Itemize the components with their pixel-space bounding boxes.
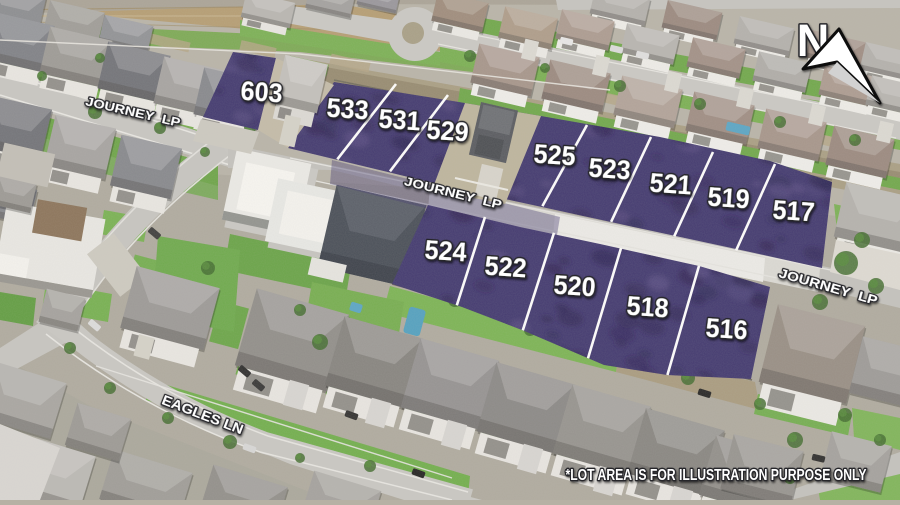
svg-text:521: 521 <box>649 168 693 201</box>
svg-text:520: 520 <box>553 270 597 303</box>
svg-text:518: 518 <box>626 291 670 324</box>
svg-text:522: 522 <box>484 251 528 284</box>
svg-text:529: 529 <box>426 115 470 148</box>
svg-text:523: 523 <box>588 153 632 186</box>
svg-text:524: 524 <box>424 235 468 268</box>
svg-text:*LOT AREA IS FOR ILLUSTRATION: *LOT AREA IS FOR ILLUSTRATION PURPOSE ON… <box>566 467 867 484</box>
svg-text:525: 525 <box>533 139 577 172</box>
svg-text:603: 603 <box>240 76 284 109</box>
svg-text:519: 519 <box>707 182 751 215</box>
svg-text:531: 531 <box>378 104 422 137</box>
svg-text:517: 517 <box>772 195 816 228</box>
svg-text:516: 516 <box>705 313 749 346</box>
svg-text:533: 533 <box>326 93 370 126</box>
